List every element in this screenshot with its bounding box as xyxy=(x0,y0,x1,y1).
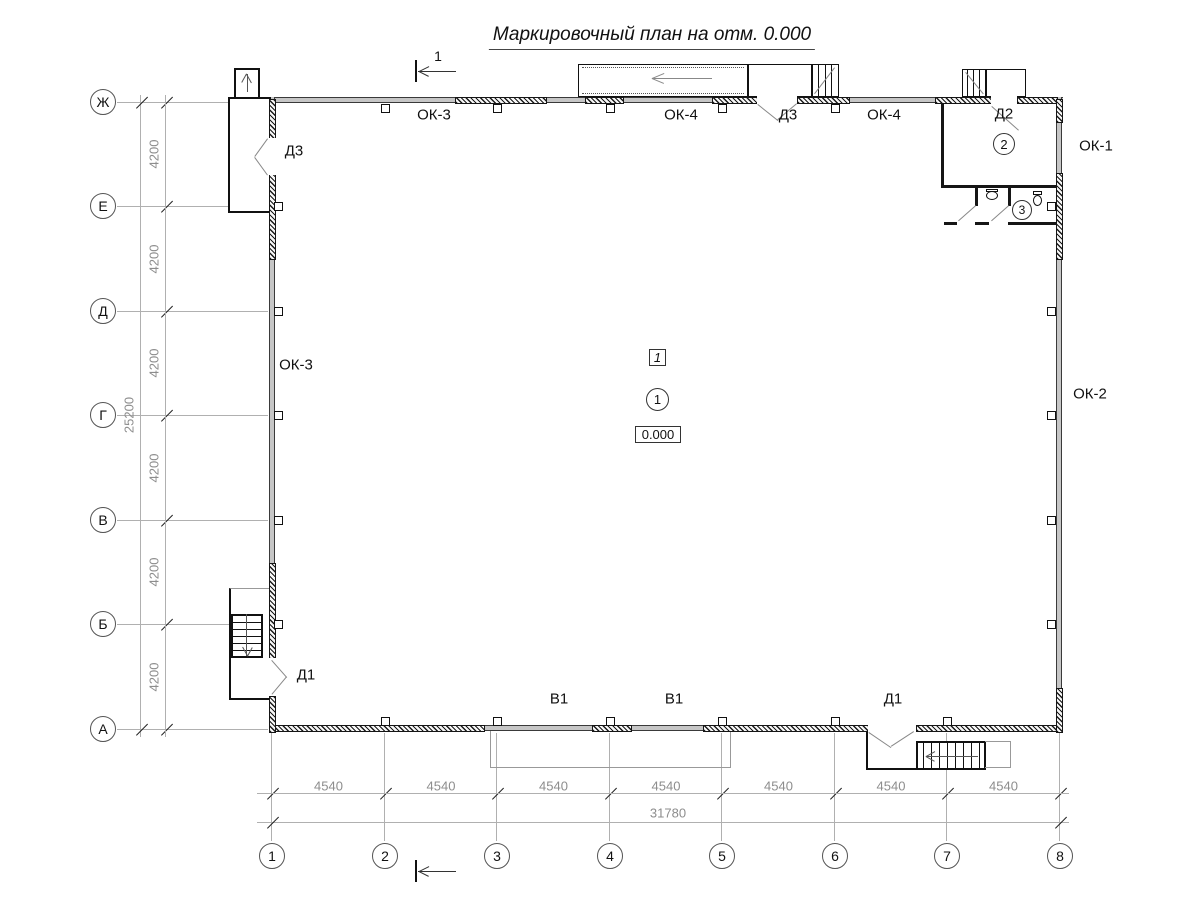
wall-pier-west xyxy=(269,563,276,660)
stair-tread xyxy=(923,742,924,769)
stair-center-line xyxy=(246,614,247,656)
section-mark-bar xyxy=(415,60,417,82)
loading-platform xyxy=(748,64,812,97)
axis-bubble-2: 2 xyxy=(372,843,398,869)
axis-bubble-1: 1 xyxy=(259,843,285,869)
wall-pier-north xyxy=(1017,97,1058,104)
section-mark-line xyxy=(418,71,456,72)
column-mark xyxy=(274,620,283,629)
ramp-arrow xyxy=(652,78,712,79)
axis-bubble-6: 6 xyxy=(822,843,848,869)
door-opening-d1-east xyxy=(868,724,916,734)
door-label-d1-east: Д1 xyxy=(884,691,903,708)
dim-4200: 4200 xyxy=(147,558,162,587)
window-label-ok3-north: ОК-3 xyxy=(417,107,451,124)
elevation-mark: 0.000 xyxy=(635,426,681,443)
axis-bubble-3: 3 xyxy=(484,843,510,869)
axis-bubble-8: 8 xyxy=(1047,843,1073,869)
gate-label-v1-right: В1 xyxy=(665,691,683,708)
stair-tread xyxy=(979,70,980,96)
door-label-d3-west: Д3 xyxy=(285,143,304,160)
column-mark xyxy=(381,104,390,113)
dim-chain-v-seg xyxy=(165,95,166,737)
column-mark xyxy=(274,516,283,525)
wall-pier-west xyxy=(269,696,276,733)
door-label-d1-west: Д1 xyxy=(297,667,316,684)
column-mark xyxy=(1047,202,1056,211)
hall-number-bubble: 1 xyxy=(646,388,669,411)
toilet-bowl xyxy=(1033,195,1042,206)
wc-partition-2 xyxy=(1008,188,1011,206)
door-opening-d3-west xyxy=(268,138,277,175)
axis-bubble-Б: Б xyxy=(90,611,116,637)
dim-4200: 4200 xyxy=(147,140,162,169)
wall-pier-north xyxy=(712,97,760,104)
axis-bubble-Г: Г xyxy=(90,402,116,428)
dim-4200: 4200 xyxy=(147,453,162,482)
wall-pier-south xyxy=(592,725,632,732)
column-mark xyxy=(381,717,390,726)
section-number-label: 1 xyxy=(434,48,442,64)
plan-title: Маркировочный план на отм. 0.000 xyxy=(489,24,815,50)
northeast-entry-landing xyxy=(986,69,1026,97)
gate-apron-outline xyxy=(490,731,731,768)
door-swing xyxy=(757,104,778,121)
dim-4540: 4540 xyxy=(877,779,906,794)
column-mark xyxy=(606,717,615,726)
dim-chain-h-total xyxy=(257,822,1069,823)
axis-line-v xyxy=(834,733,835,841)
window-label-ok2: ОК-2 xyxy=(1073,386,1107,403)
column-mark xyxy=(718,104,727,113)
axis-bubble-Ж: Ж xyxy=(90,89,116,115)
door-swing xyxy=(991,205,1009,221)
column-mark xyxy=(718,717,727,726)
axis-bubble-5: 5 xyxy=(709,843,735,869)
dim-4540: 4540 xyxy=(314,779,343,794)
column-mark xyxy=(493,717,502,726)
wall-pier-north xyxy=(585,97,624,104)
dim-4540: 4540 xyxy=(764,779,793,794)
room2-number-bubble: 2 xyxy=(993,133,1015,155)
wc-south-wall-1 xyxy=(944,222,957,225)
door-swing xyxy=(958,205,976,221)
column-mark xyxy=(831,104,840,113)
dim-31780: 31780 xyxy=(650,806,686,821)
dim-4200: 4200 xyxy=(147,349,162,378)
column-mark xyxy=(943,717,952,726)
stair-arrow xyxy=(926,756,978,757)
dim-4540: 4540 xyxy=(539,779,568,794)
hall-type-tag: 1 xyxy=(649,349,666,366)
column-mark xyxy=(1047,516,1056,525)
wc-south-wall-2 xyxy=(975,222,989,225)
door-opening-d2 xyxy=(991,96,1017,106)
section-mark-line xyxy=(418,871,456,872)
window-label-ok3-west: ОК-3 xyxy=(279,357,313,374)
room2-south-wall xyxy=(941,185,1056,188)
southeast-landing-outline xyxy=(985,741,1011,768)
wall-pier-north xyxy=(455,97,547,104)
column-mark xyxy=(274,307,283,316)
column-mark xyxy=(831,717,840,726)
wall-pier-south xyxy=(272,725,485,732)
wc-south-wall-3 xyxy=(1008,222,1056,225)
dim-4540: 4540 xyxy=(989,779,1018,794)
loading-ramp xyxy=(578,64,748,97)
wall-pier-north xyxy=(797,97,850,104)
dim-4540: 4540 xyxy=(652,779,681,794)
axis-bubble-В: В xyxy=(90,507,116,533)
dim-25200: 25200 xyxy=(122,397,137,433)
door-label-d3-north: Д3 xyxy=(779,107,798,124)
column-mark xyxy=(1047,307,1056,316)
axis-bubble-4: 4 xyxy=(597,843,623,869)
column-mark xyxy=(606,104,615,113)
column-mark xyxy=(274,411,283,420)
wall-pier-east xyxy=(1056,99,1063,123)
section-mark-bar xyxy=(415,860,417,882)
sink xyxy=(986,191,998,200)
stair-tread xyxy=(979,742,980,769)
door-opening-d3-north xyxy=(757,96,797,106)
column-mark xyxy=(1047,620,1056,629)
axis-bubble-А: А xyxy=(90,716,116,742)
door-label-d2: Д2 xyxy=(995,106,1014,123)
column-mark xyxy=(493,104,502,113)
dim-4200: 4200 xyxy=(147,244,162,273)
ramp-edge-dots xyxy=(582,67,744,94)
dim-4540: 4540 xyxy=(427,779,456,794)
window-label-ok1: ОК-1 xyxy=(1079,138,1113,155)
axis-bubble-Д: Д xyxy=(90,298,116,324)
window-label-ok4-left: ОК-4 xyxy=(664,107,698,124)
column-mark xyxy=(1047,411,1056,420)
wall-pier-south xyxy=(916,725,1058,732)
wall-pier-south xyxy=(703,725,870,732)
gate-label-v1-left: В1 xyxy=(550,691,568,708)
dim-chain-v-total xyxy=(140,95,141,737)
stair-tread xyxy=(818,65,819,96)
wall-pier-west xyxy=(269,174,276,260)
northwest-vestibule xyxy=(228,97,271,213)
wall-pier-west xyxy=(269,99,276,141)
axis-line-v xyxy=(384,733,385,841)
column-mark xyxy=(274,202,283,211)
floor-plan-sheet: Маркировочный план на отм. 0.000 ЖЕДГВБА… xyxy=(0,0,1200,900)
axis-bubble-7: 7 xyxy=(934,843,960,869)
room2-west-wall xyxy=(941,103,944,188)
wall-pier-east xyxy=(1056,173,1063,260)
room3-number-bubble: 3 xyxy=(1012,200,1032,220)
window-label-ok4-right: ОК-4 xyxy=(867,107,901,124)
wall-pier-north xyxy=(935,97,993,104)
dim-4200: 4200 xyxy=(147,662,162,691)
wall-pier-east xyxy=(1056,688,1063,733)
wc-partition-1 xyxy=(975,188,978,206)
axis-bubble-Е: Е xyxy=(90,193,116,219)
